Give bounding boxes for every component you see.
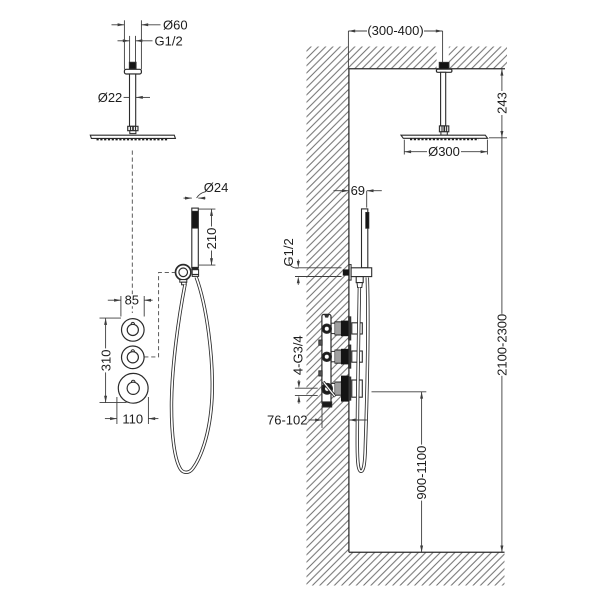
- svg-text:243: 243: [494, 92, 509, 114]
- svg-text:85: 85: [125, 293, 139, 308]
- svg-text:Ø60: Ø60: [163, 18, 188, 33]
- svg-text:Ø300: Ø300: [428, 144, 460, 159]
- svg-text:Ø22: Ø22: [98, 90, 123, 105]
- svg-text:Ø24: Ø24: [204, 180, 229, 195]
- svg-text:(300-400): (300-400): [367, 23, 423, 38]
- svg-text:4-G3/4: 4-G3/4: [290, 335, 305, 375]
- svg-text:110: 110: [122, 411, 143, 426]
- svg-text:76-102: 76-102: [267, 412, 307, 427]
- svg-text:310: 310: [98, 350, 113, 372]
- svg-text:210: 210: [204, 228, 219, 250]
- svg-text:900-1100: 900-1100: [414, 446, 429, 500]
- svg-text:2100-2300: 2100-2300: [494, 314, 509, 376]
- svg-text:G1/2: G1/2: [155, 34, 183, 49]
- svg-text:69: 69: [351, 183, 365, 198]
